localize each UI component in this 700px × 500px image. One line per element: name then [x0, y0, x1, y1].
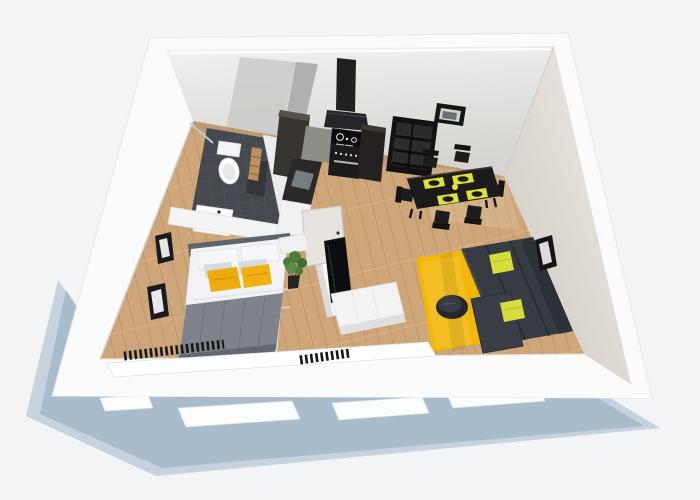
centerpiece [452, 184, 458, 190]
shelving-unit [386, 116, 438, 177]
faucet [217, 210, 220, 213]
floor-plan-svg [0, 0, 700, 500]
granite-counter [301, 126, 334, 163]
wall-frame-top [434, 103, 466, 126]
floor-plan-render [0, 0, 700, 500]
double-bed [178, 233, 291, 363]
tall-cabinet [357, 124, 386, 182]
door-handle [336, 231, 339, 234]
wall-frame-left-1 [155, 232, 174, 264]
coffee-table [436, 295, 468, 319]
